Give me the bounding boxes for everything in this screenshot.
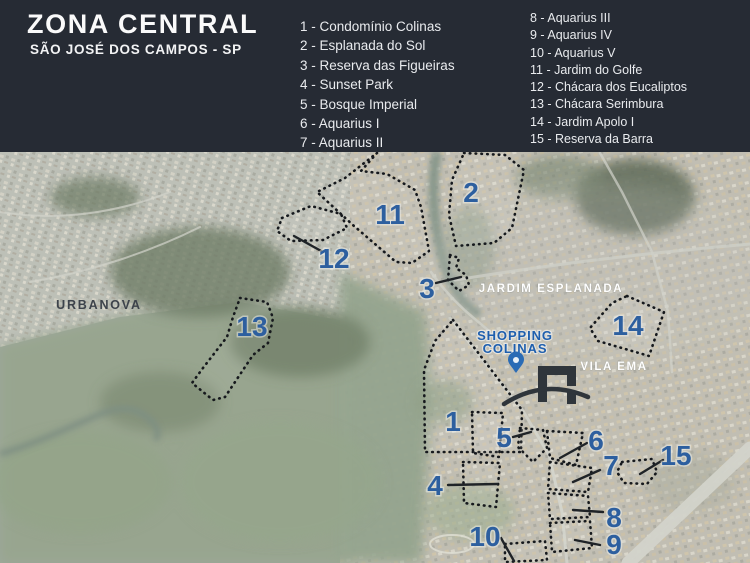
page-title: ZONA CENTRAL xyxy=(27,9,258,40)
legend-item: 10 - Aquarius V xyxy=(530,45,687,62)
legend-item: 13 - Chácara Serimbura xyxy=(530,96,687,113)
legend-column-1: 1 - Condomínio Colinas 2 - Esplanada do … xyxy=(300,17,455,153)
label-jardim-esplanada: JARDIM ESPLANADA xyxy=(479,283,623,295)
region-outline-9 xyxy=(550,521,592,552)
region-number-10: 10 xyxy=(469,521,500,552)
label-vila-ema: VILA EMA xyxy=(580,361,647,373)
infographic-page: ZONA CENTRAL SÃO JOSÉ DOS CAMPOS - SP 1 … xyxy=(0,0,750,563)
region-outline-10 xyxy=(505,541,547,562)
legend-item: 4 - Sunset Park xyxy=(300,75,455,94)
legend-item: 14 - Jardim Apolo I xyxy=(530,114,687,131)
region-number-5: 5 xyxy=(496,422,512,453)
legend-item: 2 - Esplanada do Sol xyxy=(300,36,455,55)
page-subtitle: SÃO JOSÉ DOS CAMPOS - SP xyxy=(30,42,242,57)
region-number-6: 6 xyxy=(588,425,604,456)
region-number-3: 3 xyxy=(419,273,435,304)
legend-item: 1 - Condomínio Colinas xyxy=(300,17,455,36)
legend-item: 3 - Reserva das Figueiras xyxy=(300,56,455,75)
legend-item: 12 - Chácara dos Eucaliptos xyxy=(530,79,687,96)
region-number-15: 15 xyxy=(660,440,691,471)
region-number-7: 7 xyxy=(603,450,619,481)
region-number-9: 9 xyxy=(606,529,622,560)
region-number-2: 2 xyxy=(463,177,479,208)
legend-item: 9 - Aquarius IV xyxy=(530,27,687,44)
region-number-14: 14 xyxy=(612,310,644,341)
region-pointer-4 xyxy=(448,484,497,485)
legend-item: 11 - Jardim do Golfe xyxy=(530,62,687,79)
satellite-map: 1 2 3 4 5 6 7 8 9 10 11 12 13 14 15 URBA… xyxy=(0,152,750,563)
region-outline-8 xyxy=(548,493,590,519)
legend-item: 5 - Bosque Imperial xyxy=(300,95,455,114)
label-urbanova: URBANOVA xyxy=(56,298,142,312)
legend-item: 7 - Aquarius II xyxy=(300,133,455,152)
region-number-11: 11 xyxy=(375,199,405,230)
header-bar: ZONA CENTRAL SÃO JOSÉ DOS CAMPOS - SP 1 … xyxy=(0,0,750,152)
region-number-12: 12 xyxy=(318,243,349,274)
region-number-1: 1 xyxy=(445,406,461,437)
region-number-4: 4 xyxy=(427,470,443,501)
legend-item: 15 - Reserva da Barra xyxy=(530,131,687,148)
legend-item: 8 - Aquarius III xyxy=(530,10,687,27)
legend-item: 6 - Aquarius I xyxy=(300,114,455,133)
region-number-13: 13 xyxy=(236,311,267,342)
legend-column-2: 8 - Aquarius III 9 - Aquarius IV 10 - Aq… xyxy=(530,10,687,148)
